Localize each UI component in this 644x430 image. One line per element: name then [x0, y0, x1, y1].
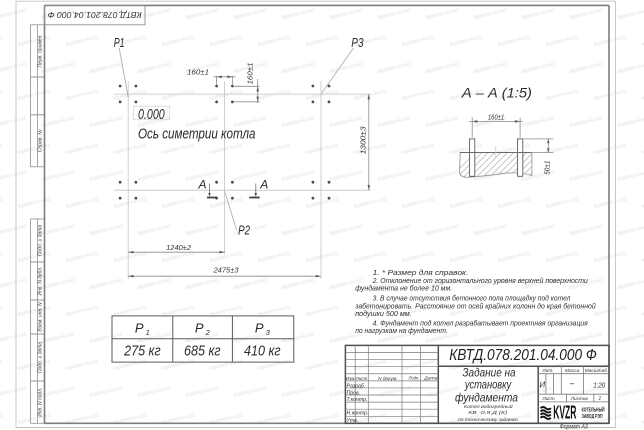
- svg-text:N докум.: N докум.: [378, 376, 398, 382]
- svg-text:Листов: Листов: [570, 396, 589, 402]
- svg-text:Н.контр.: Н.контр.: [347, 411, 369, 417]
- svg-text:160±1: 160±1: [488, 114, 505, 121]
- svg-text:установку: установку: [464, 377, 512, 391]
- svg-text:Котел водогрейный: Котел водогрейный: [464, 403, 513, 410]
- svg-text:ЗАВОД РЭП: ЗАВОД РЭП: [582, 414, 603, 420]
- svg-text:И: И: [539, 380, 545, 389]
- svg-text:Лит.: Лит.: [541, 368, 553, 374]
- svg-text:Разраб.: Разраб.: [347, 383, 366, 389]
- svg-text:Лист: Лист: [541, 396, 554, 402]
- svg-text:А: А: [259, 177, 268, 191]
- svg-text:фундамента не более 10 мм.: фундамента не более 10 мм.: [355, 284, 452, 293]
- svg-text:Пров.: Пров.: [347, 390, 361, 396]
- svg-text:Изм.Лист: Изм.Лист: [346, 376, 368, 382]
- svg-text:160±1: 160±1: [187, 69, 209, 76]
- svg-text:50±1: 50±1: [545, 160, 552, 174]
- svg-text:275 кг: 275 кг: [123, 344, 160, 360]
- svg-text:Перв. примен.: Перв. примен.: [37, 34, 43, 67]
- svg-text:КВ -0,9 Д (К): КВ -0,9 Д (К): [468, 410, 508, 416]
- svg-text:Ось симетрии котла: Ось симетрии котла: [138, 126, 256, 143]
- svg-text:160±1: 160±1: [248, 62, 255, 84]
- svg-text:685 кг: 685 кг: [184, 344, 221, 360]
- svg-text:подушки 500 мм.: подушки 500 мм.: [355, 309, 412, 318]
- svg-text:1:20: 1:20: [593, 380, 606, 389]
- svg-text:Масса: Масса: [565, 368, 580, 374]
- svg-text:1: 1: [598, 396, 601, 402]
- svg-text:А – А (1:5): А – А (1:5): [461, 85, 532, 101]
- svg-text:КВТД.078.201.04.000 Ф: КВТД.078.201.04.000 Ф: [47, 10, 141, 20]
- svg-text:Подп. и дата: Подп. и дата: [37, 342, 43, 374]
- svg-text:Подп. и дата: Подп. и дата: [37, 225, 43, 257]
- svg-text:P3: P3: [351, 36, 363, 50]
- svg-text:КВТД.078.201.04.000 Ф: КВТД.078.201.04.000 Ф: [449, 347, 597, 364]
- svg-text:Т.контр.: Т.контр.: [347, 397, 368, 403]
- svg-text:по техническому заданию: по техническому заданию: [458, 417, 518, 423]
- svg-text:КОТЕЛЬНЫЙ: КОТЕЛЬНЫЙ: [582, 406, 605, 414]
- svg-text:KVZR: KVZR: [553, 403, 576, 423]
- svg-text:Утв.: Утв.: [347, 418, 359, 424]
- svg-text:1300±3: 1300±3: [358, 126, 367, 154]
- svg-text:0.000: 0.000: [138, 106, 165, 123]
- svg-text:410 кг: 410 кг: [244, 344, 281, 360]
- svg-text:А: А: [198, 177, 207, 191]
- svg-text:–: –: [569, 379, 575, 388]
- svg-text:P1: P1: [114, 36, 125, 50]
- svg-text:1240±2: 1240±2: [166, 243, 191, 252]
- svg-text:фундамента: фундамента: [455, 390, 518, 404]
- svg-text:Справ. №: Справ. №: [37, 129, 43, 152]
- svg-text:Взам. инв. N: Взам. инв. N: [37, 302, 43, 332]
- svg-text:Инв. N дубл.: Инв. N дубл.: [37, 267, 43, 296]
- svg-text:Подп.: Подп.: [409, 375, 420, 381]
- svg-text:Инв. N подл.: Инв. N подл.: [37, 388, 43, 417]
- svg-text:Масштаб: Масштаб: [585, 368, 607, 374]
- svg-text:Формат А3: Формат А3: [560, 423, 589, 430]
- svg-text:по нагрузкам на фундамент.: по нагрузкам на фундамент.: [355, 326, 448, 335]
- svg-text:P2: P2: [238, 224, 250, 238]
- svg-text:2475±3: 2475±3: [212, 265, 238, 274]
- svg-text:Дата: Дата: [423, 375, 437, 381]
